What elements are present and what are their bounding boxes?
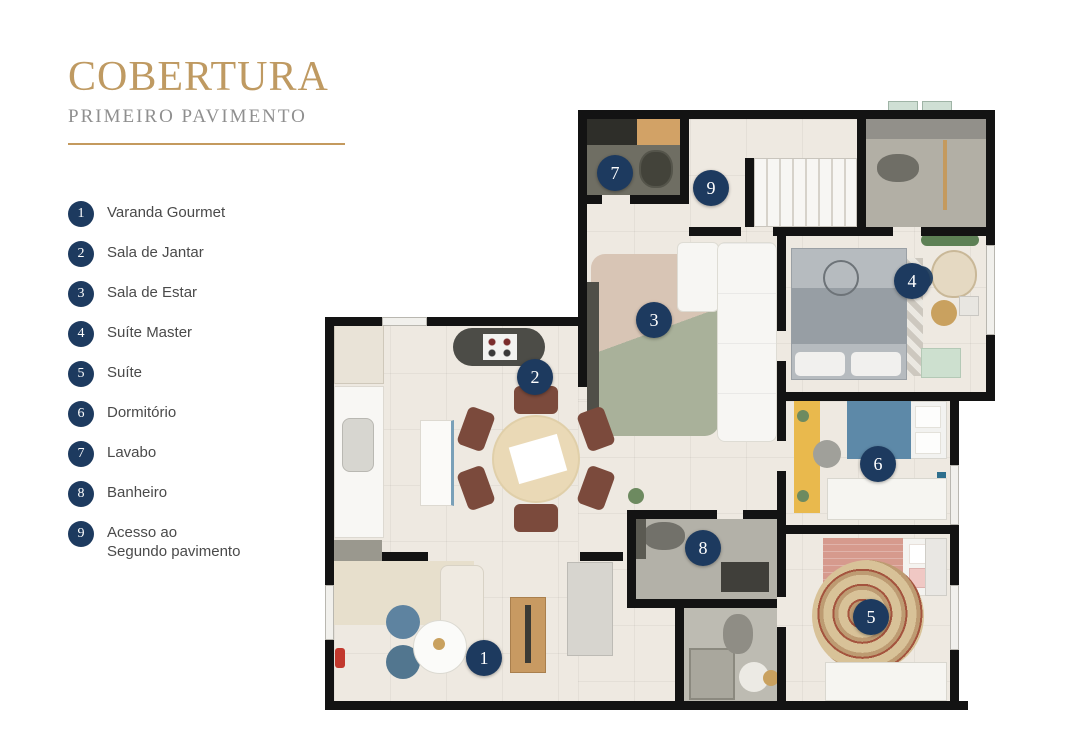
legend-label: Acesso ao Segundo pavimento — [107, 521, 240, 562]
lavabo-wood-shelf — [637, 119, 680, 145]
wall-segment — [578, 110, 587, 321]
buffet-cabinet — [420, 420, 454, 506]
legend-item: 8 Banheiro — [68, 481, 358, 507]
wall-segment — [777, 627, 786, 701]
legend-item: 2 Sala de Jantar — [68, 241, 358, 267]
toilet — [643, 522, 685, 550]
wall-segment — [325, 701, 968, 710]
pillow — [915, 432, 941, 454]
wall-segment — [627, 599, 777, 608]
master-bed-blanket — [791, 288, 907, 344]
wall-segment — [745, 158, 754, 227]
sofa — [717, 242, 777, 442]
legend-number-badge: 8 — [68, 481, 94, 507]
wall-segment — [325, 317, 382, 326]
legend-label: Sala de Jantar — [107, 241, 204, 263]
legend-label: Lavabo — [107, 441, 156, 463]
window — [950, 465, 959, 525]
fridge — [334, 324, 384, 384]
red-accessory — [335, 648, 345, 668]
suite-shelf — [925, 538, 947, 596]
pillow — [851, 352, 901, 376]
window — [986, 245, 995, 335]
plan-badge-9: 9 — [693, 170, 729, 206]
wall-segment — [689, 227, 741, 236]
legend-label: Sala de Estar — [107, 281, 197, 303]
toilet — [639, 150, 673, 188]
dining-chair — [514, 504, 558, 532]
legend-number-badge: 1 — [68, 201, 94, 227]
legend-item: 3 Sala de Estar — [68, 281, 358, 307]
wall-segment — [786, 525, 950, 534]
wall-segment — [578, 195, 602, 204]
side-table-gold — [931, 300, 957, 326]
plan-badge-3: 3 — [636, 302, 672, 338]
wall-segment — [777, 236, 786, 331]
wall-segment — [627, 510, 717, 519]
wall-segment — [950, 392, 959, 465]
wall-segment — [382, 552, 428, 561]
legend-number-badge: 3 — [68, 281, 94, 307]
wall-segment — [950, 525, 959, 585]
plan-badge-2: 2 — [517, 359, 553, 395]
wall-segment — [777, 471, 786, 597]
wall-segment — [427, 317, 583, 326]
legend-number-badge: 2 — [68, 241, 94, 267]
toilet — [723, 614, 753, 654]
desk-chair — [813, 440, 841, 468]
legend-item: 4 Suíte Master — [68, 321, 358, 347]
legend-item: 1 Varanda Gourmet — [68, 201, 358, 227]
hanging-chair — [931, 250, 977, 298]
floor-plan: 1 2 3 4 5 6 7 8 9 — [325, 110, 995, 710]
cooktop — [483, 334, 517, 360]
window — [325, 585, 334, 640]
legend-label-line2: Segundo pavimento — [107, 543, 240, 562]
plan-badge-5: 5 — [853, 599, 889, 635]
legend-label: Banheiro — [107, 481, 167, 503]
desk-plant — [797, 490, 809, 502]
dorm-wardrobe — [827, 478, 947, 520]
plan-badge-6: 6 — [860, 446, 896, 482]
legend-label: Suíte — [107, 361, 142, 383]
info-panel: COBERTURA PRIMEIRO PAVIMENTO 1 Varanda G… — [68, 56, 358, 576]
wall-segment — [857, 110, 866, 236]
bath-vanity — [721, 562, 769, 592]
wall-segment — [986, 110, 995, 245]
tv-panel — [587, 282, 599, 414]
legend-number-badge: 4 — [68, 321, 94, 347]
bench — [921, 348, 961, 378]
toilet — [877, 154, 919, 182]
grill-slot — [525, 605, 531, 663]
wall-segment — [675, 608, 684, 701]
plan-badge-4: 4 — [894, 263, 930, 299]
sideboard — [567, 562, 613, 656]
title-rule — [68, 143, 345, 145]
wall-segment — [578, 317, 587, 387]
stairs — [754, 158, 857, 227]
desk-plant — [797, 410, 809, 422]
coffee-tray — [433, 638, 445, 650]
plan-badge-7: 7 — [597, 155, 633, 191]
wall-segment — [786, 392, 995, 401]
plan-badge-8: 8 — [685, 530, 721, 566]
shower — [689, 648, 735, 700]
legend-item: 6 Dormitório — [68, 401, 358, 427]
legend-label: Suíte Master — [107, 321, 192, 343]
legend: 1 Varanda Gourmet 2 Sala de Jantar 3 Sal… — [68, 201, 358, 562]
legend-item: 5 Suíte — [68, 361, 358, 387]
legend-number-badge: 6 — [68, 401, 94, 427]
wall-segment — [627, 510, 636, 608]
corridor-plant — [628, 488, 644, 504]
legend-item: 7 Lavabo — [68, 441, 358, 467]
legend-item: 9 Acesso ao Segundo pavimento — [68, 521, 358, 562]
page-title: COBERTURA — [68, 56, 358, 98]
legend-number-badge: 9 — [68, 521, 94, 547]
shower-door — [943, 140, 947, 210]
pillow — [795, 352, 845, 376]
wall-segment — [680, 110, 689, 204]
legend-number-badge: 7 — [68, 441, 94, 467]
wall-segment — [325, 640, 334, 710]
wall-segment — [325, 317, 334, 585]
legend-label: Dormitório — [107, 401, 176, 423]
wall-segment — [777, 401, 786, 441]
wall-segment — [777, 361, 786, 401]
window — [382, 317, 427, 326]
master-bath-counter — [866, 119, 986, 139]
suite-wardrobe — [825, 662, 947, 701]
legend-label-line1: Acesso ao — [107, 524, 240, 543]
kitchen-sink — [342, 418, 374, 472]
legend-label: Varanda Gourmet — [107, 201, 225, 223]
pillow — [915, 406, 941, 428]
plan-badge-1: 1 — [466, 640, 502, 676]
legend-number-badge: 5 — [68, 361, 94, 387]
wall-segment — [743, 510, 777, 519]
wall-segment — [630, 195, 689, 204]
bed-decor-circle — [823, 260, 859, 296]
wall-segment — [580, 552, 623, 561]
wall-segment — [921, 227, 995, 236]
bath-shelf — [636, 519, 646, 559]
wall-segment — [773, 227, 893, 236]
lavabo-counter — [587, 119, 639, 145]
side-table — [959, 296, 979, 316]
sofa-chaise — [677, 242, 719, 312]
window — [950, 585, 959, 650]
page-subtitle: PRIMEIRO PAVIMENTO — [68, 106, 358, 128]
wall-segment — [578, 110, 995, 119]
